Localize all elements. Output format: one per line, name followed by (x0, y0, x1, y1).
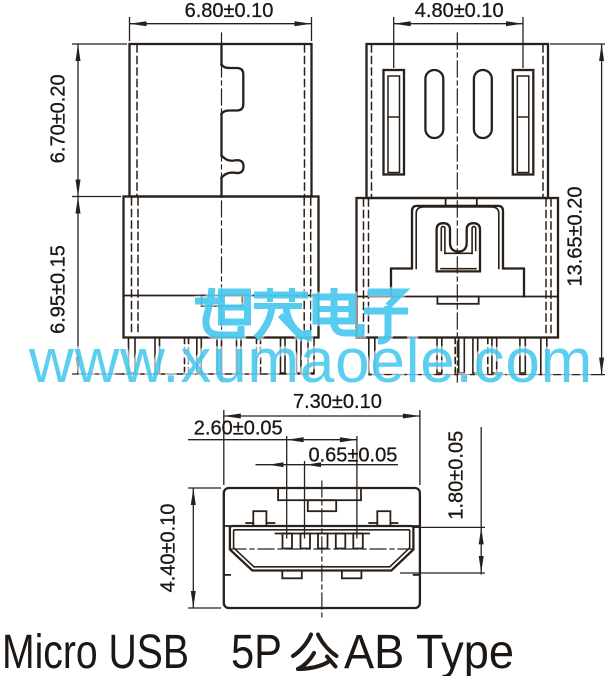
svg-text:6.70±0.20: 6.70±0.20 (47, 74, 69, 163)
svg-text:2.60±0.05: 2.60±0.05 (194, 418, 283, 440)
svg-text:Micro USB: Micro USB (2, 626, 189, 676)
svg-text:6.80±0.10: 6.80±0.10 (185, 0, 274, 22)
svg-text:1.80±0.05: 1.80±0.05 (446, 431, 468, 520)
svg-text:www.xumaoele.com: www.xumaoele.com (28, 327, 593, 396)
svg-text:5P: 5P (231, 626, 282, 676)
svg-text:13.65±0.20: 13.65±0.20 (565, 187, 587, 287)
svg-text:AB Type: AB Type (344, 626, 514, 676)
svg-text:6.95±0.15: 6.95±0.15 (47, 245, 69, 334)
svg-text:0.65±0.05: 0.65±0.05 (309, 445, 398, 467)
svg-text:4.80±0.10: 4.80±0.10 (415, 0, 504, 22)
svg-text:4.40±0.10: 4.40±0.10 (158, 504, 180, 593)
